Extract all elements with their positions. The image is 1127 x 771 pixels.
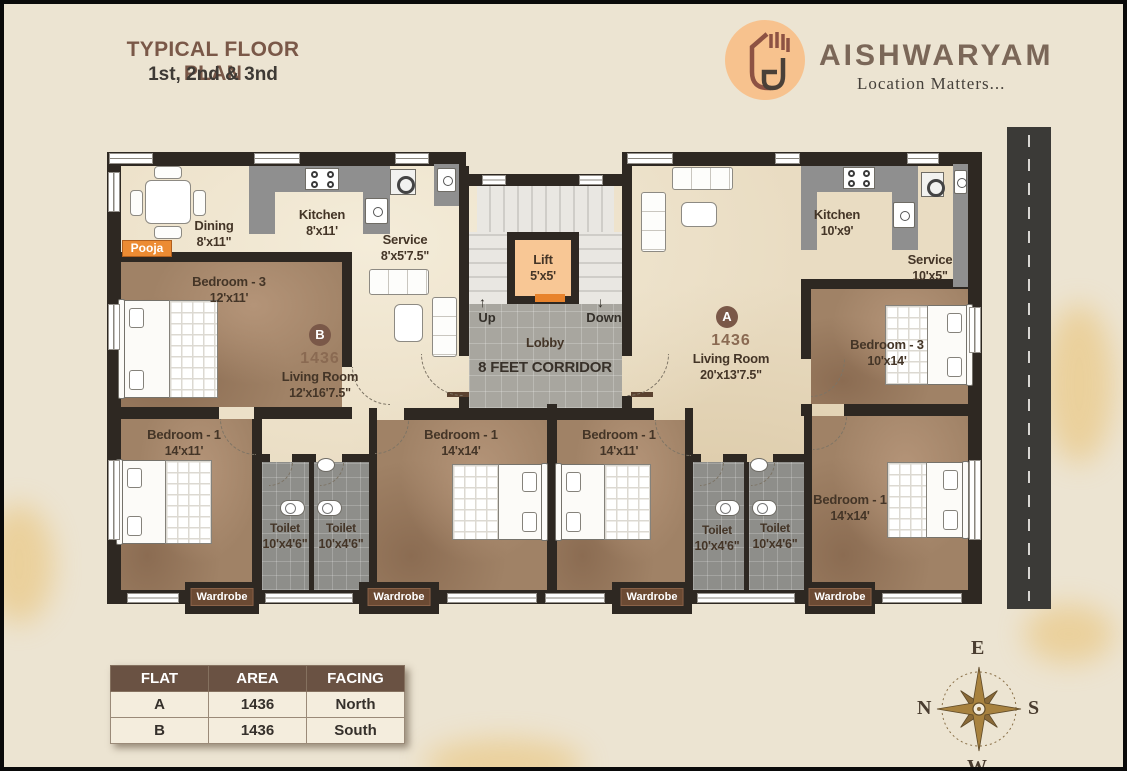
window [482, 175, 506, 185]
dining-table-icon [145, 180, 191, 224]
brochure-page: TYPICAL FLOOR PLAN 1st, 2nd & 3nd AISHWA… [0, 0, 1127, 771]
wardrobe-label: Wardrobe [809, 588, 872, 606]
bed-icon [120, 460, 212, 544]
exterior-notch [466, 152, 622, 174]
chair-icon [130, 190, 143, 216]
bed-icon [559, 464, 651, 540]
lift-label: Lift 5'x5' [530, 252, 556, 284]
unit-badge-a: A [716, 306, 738, 328]
compass-right-letter: S [1028, 697, 1039, 720]
wardrobe: Wardrobe [359, 582, 439, 614]
room-label-service-a: Service10'x5" [908, 252, 953, 284]
window [447, 593, 537, 603]
service-sink-icon [954, 170, 967, 194]
tv-unit-icon [681, 202, 717, 227]
down-label: Down [586, 310, 621, 325]
room-label-bedroom3-b: Bedroom - 312'x11' [192, 274, 266, 306]
room-label-toilet2-a: Toilet10'x4'6" [752, 520, 797, 552]
pooja-label: Pooja [122, 240, 172, 257]
unit-area-a: 1436 [711, 332, 751, 350]
bed-icon [122, 300, 218, 398]
wall [121, 407, 219, 419]
room-label-bedroom1b-b: Bedroom - 114'x14' [424, 427, 498, 459]
lift-shaft: Lift 5'x5' [507, 232, 579, 304]
wall [622, 166, 632, 356]
compass-left-letter: N [917, 697, 931, 720]
wall [292, 454, 316, 462]
wall [342, 454, 369, 462]
marble-stain [1044, 304, 1114, 464]
stove-icon [305, 168, 339, 190]
window [127, 593, 179, 603]
washing-machine-icon [390, 169, 416, 195]
wardrobe: Wardrobe [185, 582, 259, 614]
brand-logo-icon [725, 20, 805, 100]
kitchen-counter [249, 192, 275, 234]
marble-stain [0, 504, 54, 624]
room-label-service-b: Service8'x5'7.5" [381, 232, 429, 264]
wardrobe: Wardrobe [805, 582, 875, 614]
kitchen-sink-icon [893, 202, 915, 228]
flat-comparison-table: FLAT AREA FACING A 1436 North B 1436 Sou… [110, 665, 405, 744]
window [775, 153, 800, 164]
window [969, 307, 981, 353]
lift-door [535, 294, 565, 302]
bed-icon [887, 462, 965, 538]
window [395, 153, 429, 164]
room-label-bedroom1-a: Bedroom - 114'x11' [582, 427, 656, 459]
stair-treads-left [469, 232, 509, 304]
compass-bottom-letter: W [967, 756, 987, 771]
unit-badge-b: B [309, 324, 331, 346]
room-label-bedroom1b-a: Bedroom - 114'x14' [813, 492, 887, 524]
toilet-wc-icon [752, 500, 777, 516]
wall [254, 407, 352, 419]
up-label: Up [478, 310, 495, 325]
service-sink-icon [437, 168, 456, 192]
wall [404, 408, 459, 420]
washing-machine-icon [921, 172, 944, 197]
wall [801, 404, 811, 416]
cell-area-a: 1436 [209, 692, 307, 718]
cell-facing-a: North [307, 692, 405, 718]
wall [309, 462, 314, 590]
window [108, 172, 120, 212]
compass-rose: E N S W [909, 637, 1049, 771]
window [627, 153, 673, 164]
toilet-wc-icon [715, 500, 740, 516]
window [108, 304, 120, 350]
stove-icon [843, 167, 875, 189]
unit-area-b: 1436 [300, 350, 340, 368]
floor-plan: Lift 5'x5' [107, 152, 982, 618]
window [969, 460, 981, 540]
toilet-wc-icon [317, 500, 342, 516]
window [108, 460, 120, 540]
window [109, 153, 153, 164]
wall [844, 404, 982, 416]
wardrobe-label: Wardrobe [191, 588, 254, 606]
window [579, 175, 603, 185]
room-label-toilet1-a: Toilet10'x4'6" [694, 522, 739, 554]
up-arrow-icon: ↑ [479, 294, 486, 310]
kitchen-sink-icon [365, 198, 388, 224]
window [907, 153, 939, 164]
sofa-icon [432, 297, 457, 357]
cell-flat-a: A [111, 692, 209, 718]
table-header-area: AREA [209, 666, 307, 692]
sofa-icon [641, 192, 666, 252]
wall [804, 404, 812, 590]
bed-icon [452, 464, 544, 540]
room-label-bedroom1-b: Bedroom - 114'x11' [147, 427, 221, 459]
room-label-bedroom3-a: Bedroom - 310'x14' [850, 337, 924, 369]
sofa-icon [672, 167, 733, 190]
down-arrow-icon: ↓ [597, 294, 604, 310]
window [265, 593, 353, 603]
table-row: A 1436 North [111, 692, 405, 718]
wall [557, 408, 654, 420]
window [882, 593, 962, 603]
room-label-toilet2-b: Toilet10'x4'6" [318, 520, 363, 552]
wall [459, 166, 469, 356]
wall [723, 454, 747, 462]
room-label-dining: Dining8'x11" [194, 218, 233, 250]
chair-icon [154, 226, 182, 239]
brand-name: AISHWARYAM [819, 39, 1064, 73]
marble-stain [424, 739, 584, 771]
brand-tagline: Location Matters... [857, 74, 1057, 94]
cell-facing-b: South [307, 718, 405, 744]
window [545, 593, 605, 603]
wall [342, 262, 352, 367]
room-label-living-a: Living Room20'x13'7.5" [693, 351, 770, 383]
compass-top-letter: E [971, 637, 984, 660]
wardrobe-label: Wardrobe [368, 588, 431, 606]
room-label-living-b: Living Room12'x16'7.5" [282, 369, 359, 401]
table-header-flat: FLAT [111, 666, 209, 692]
cell-area-b: 1436 [209, 718, 307, 744]
road-strip [1007, 127, 1051, 609]
room-label-kitchen-b: Kitchen8'x11' [299, 207, 345, 239]
table-row: B 1436 South [111, 718, 405, 744]
tv-unit-icon [394, 304, 423, 342]
window [254, 153, 300, 164]
sofa-icon [369, 269, 429, 295]
wardrobe: Wardrobe [612, 582, 692, 614]
room-label-kitchen-a: Kitchen10'x9' [814, 207, 860, 239]
page-subtitle: 1st, 2nd & 3nd [108, 64, 318, 86]
wall [744, 462, 749, 590]
wardrobe-label: Wardrobe [621, 588, 684, 606]
wall [693, 454, 701, 462]
wall [262, 454, 270, 462]
corridor-label: 8 FEET CORRIDOR [478, 360, 612, 376]
window [697, 593, 795, 603]
toilet-wc-icon [280, 500, 305, 516]
stair-treads-top [477, 186, 614, 232]
room-label-toilet1-b: Toilet10'x4'6" [262, 520, 307, 552]
chair-icon [193, 190, 206, 216]
lobby-label: Lobby [526, 335, 564, 351]
wall [773, 454, 804, 462]
wall [801, 289, 811, 359]
table-header-facing: FACING [307, 666, 405, 692]
chair-icon [154, 166, 182, 179]
cell-flat-b: B [111, 718, 209, 744]
